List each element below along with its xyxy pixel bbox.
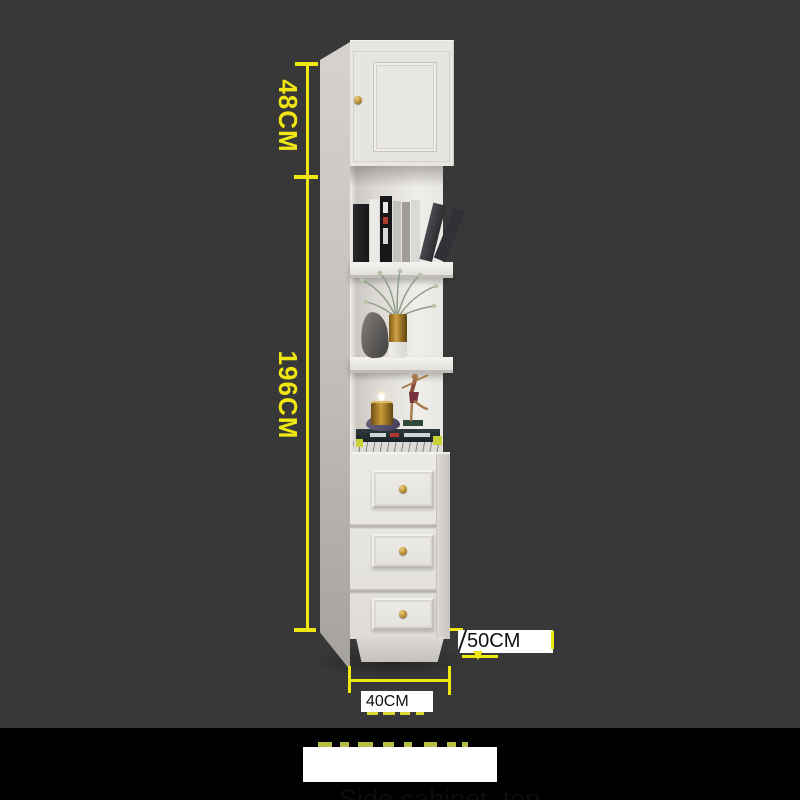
books-decor <box>353 196 448 262</box>
drawer-knob <box>399 485 407 493</box>
width-tick-left <box>348 666 351 693</box>
door-knob <box>354 96 362 104</box>
cabinet-drawer-unit <box>350 452 450 639</box>
drawer-knob <box>399 610 407 618</box>
stacked-book-marble <box>353 442 443 452</box>
book-spine-detail <box>383 202 388 213</box>
width-tick-right <box>448 666 451 695</box>
door-bevel-panel <box>373 62 437 152</box>
depth-dim-arrow <box>473 651 483 660</box>
main-height-text: 196CM <box>273 351 303 440</box>
vase-marble-base <box>389 342 407 358</box>
top-height-label: 48CM <box>275 71 303 161</box>
alcove-top-shadow <box>350 165 443 187</box>
cabinet-plinth <box>353 637 447 662</box>
book-spine-detail <box>390 433 399 437</box>
bookmark-tab <box>433 436 442 445</box>
caption-box: Side cabinet top <box>303 747 497 782</box>
dancer-figurine-decor <box>392 370 434 428</box>
drawer-groove <box>350 589 437 594</box>
cabinet-door <box>353 51 450 162</box>
book-spine-detail <box>370 433 386 437</box>
book-spine-detail <box>404 433 430 437</box>
width-label-box: 40CM <box>361 691 433 712</box>
cabinet-top-box <box>350 40 454 166</box>
candle-decor <box>371 401 393 425</box>
width-text: 40CM <box>366 693 409 710</box>
main-height-label: 196CM <box>275 335 303 455</box>
caption-text: Side cabinet top <box>339 784 540 800</box>
book-spine-detail <box>383 228 388 244</box>
drawer-front-2 <box>372 534 434 568</box>
stacked-book-dark <box>356 429 440 442</box>
top-height-text: 48CM <box>273 79 303 152</box>
width-dimension-line <box>349 679 450 682</box>
drawer-front-1 <box>372 470 434 508</box>
book-spine <box>380 196 392 262</box>
candle-flame <box>378 391 385 401</box>
depth-dim-tick <box>551 631 554 649</box>
dimension-tick-top <box>295 62 318 66</box>
drawer-front-3 <box>372 598 434 630</box>
book-spine <box>393 201 401 262</box>
dimension-tick-middle <box>294 175 318 179</box>
drawer-groove <box>350 524 437 529</box>
book-spine <box>370 199 379 262</box>
height-dimension-line <box>306 64 309 631</box>
dimension-tick-bottom <box>294 628 316 632</box>
book-spine <box>353 204 369 262</box>
product-image: 48CM 196CM 50CM 40CM Side cabinet top <box>0 0 800 800</box>
drawer-unit-side-face <box>436 454 450 639</box>
depth-label-box: 50CM <box>458 630 553 653</box>
plant-decor <box>350 268 446 318</box>
book-spine <box>402 202 410 262</box>
brass-vase-decor <box>389 314 407 342</box>
book-spine <box>411 200 420 262</box>
drawer-knob <box>399 547 407 555</box>
depth-text: 50CM <box>467 630 520 652</box>
bookmark-tab <box>356 439 363 447</box>
cabinet-side-face <box>320 42 350 670</box>
book-spine-detail <box>383 217 388 224</box>
